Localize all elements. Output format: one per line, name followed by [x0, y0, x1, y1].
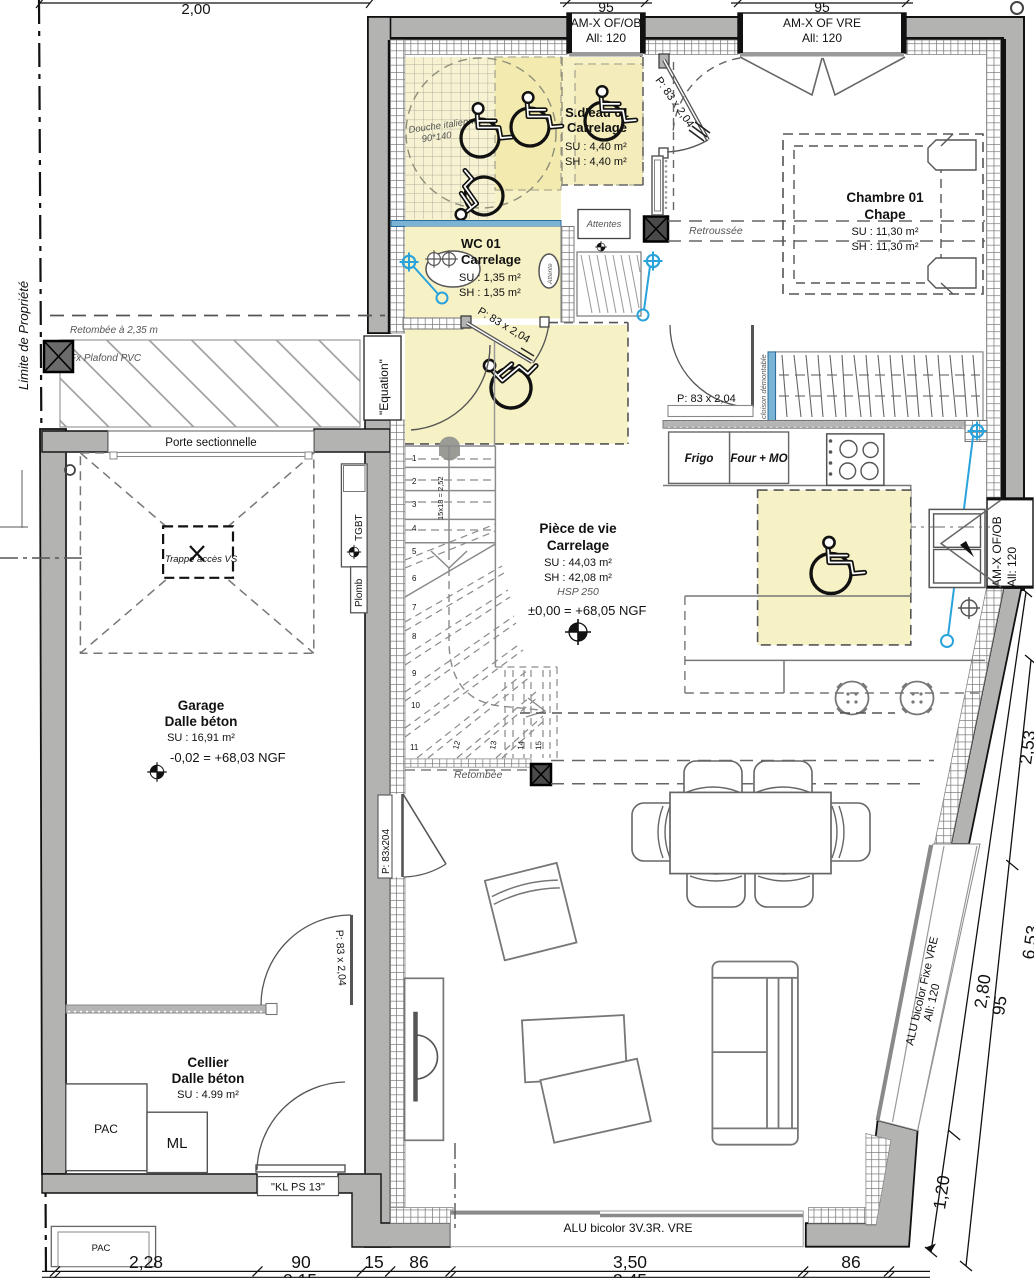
svg-text:cloison démontable: cloison démontable	[759, 354, 768, 419]
svg-text:SU : 16,91 m²: SU : 16,91 m²	[167, 732, 235, 744]
svg-text:Trappe accès VS: Trappe accès VS	[165, 554, 238, 565]
svg-text:Dalle béton: Dalle béton	[172, 1071, 245, 1086]
svg-text:Carrelage: Carrelage	[461, 252, 521, 267]
svg-text:Dalle béton: Dalle béton	[165, 714, 238, 729]
svg-text:SU : 11,30 m²: SU : 11,30 m²	[851, 226, 918, 238]
svg-text:6: 6	[412, 574, 417, 583]
svg-text:2,28: 2,28	[129, 1252, 163, 1272]
svg-text:3,45: 3,45	[613, 1270, 647, 1278]
svg-text:Chape: Chape	[864, 207, 906, 222]
svg-text:"KL PS 13": "KL PS 13"	[271, 1182, 325, 1194]
svg-text:P: 83x204: P: 83x204	[381, 829, 392, 874]
svg-text:SH : 1,35 m²: SH : 1,35 m²	[459, 287, 521, 299]
svg-text:Retombée à 2,35 m: Retombée à 2,35 m	[70, 325, 158, 336]
svg-text:15x18 = 2,52: 15x18 = 2,52	[436, 476, 445, 520]
svg-text:Carrelage: Carrelage	[547, 538, 610, 553]
svg-text:10: 10	[411, 701, 420, 710]
svg-text:86: 86	[409, 1252, 428, 1272]
svg-text:Attentes: Attentes	[586, 219, 622, 230]
svg-text:Limite de Propriété: Limite de Propriété	[16, 281, 31, 390]
svg-text:All: 120: All: 120	[1005, 547, 1019, 587]
svg-text:8: 8	[412, 632, 417, 641]
svg-text:95: 95	[598, 0, 614, 15]
svg-text:Garage: Garage	[178, 698, 225, 713]
svg-text:15: 15	[534, 740, 543, 750]
svg-text:WC 01: WC 01	[461, 236, 501, 251]
svg-text:SH : 4,40 m²: SH : 4,40 m²	[565, 156, 627, 168]
svg-text:4: 4	[412, 524, 417, 533]
svg-text:SU : 44,03 m²: SU : 44,03 m²	[544, 557, 612, 569]
svg-text:86: 86	[841, 1252, 860, 1272]
svg-text:5: 5	[412, 547, 417, 556]
svg-text:SU : 1,35 m²: SU : 1,35 m²	[459, 272, 521, 284]
svg-text:3,50: 3,50	[613, 1252, 647, 1272]
svg-text:2: 2	[412, 477, 417, 486]
svg-text:Chambre 01: Chambre 01	[846, 190, 924, 205]
svg-text:PAC: PAC	[92, 1243, 111, 1254]
svg-text:Retombée: Retombée	[454, 769, 503, 781]
svg-text:All: 120: All: 120	[586, 31, 626, 45]
svg-text:3: 3	[412, 500, 417, 509]
svg-text:90: 90	[291, 1252, 311, 1272]
svg-text:TGBT: TGBT	[354, 514, 365, 541]
svg-text:14: 14	[516, 740, 526, 750]
svg-text:7: 7	[412, 603, 417, 612]
svg-text:SH : 42,08 m²: SH : 42,08 m²	[544, 572, 612, 584]
svg-text:SU : 4.99 m²: SU : 4.99 m²	[177, 1089, 239, 1101]
svg-text:9: 9	[412, 669, 417, 678]
svg-text:-0,02 = +68,03 NGF: -0,02 = +68,03 NGF	[170, 750, 286, 765]
svg-text:Plomb: Plomb	[354, 578, 365, 607]
svg-text:SH : 11,30 m²: SH : 11,30 m²	[851, 241, 918, 253]
svg-text:2,00: 2,00	[181, 1, 210, 18]
svg-text:Four + MO: Four + MO	[730, 453, 787, 465]
svg-text:AM-X OF/OB: AM-X OF/OB	[990, 516, 1004, 587]
svg-text:All: 120: All: 120	[802, 31, 842, 45]
svg-text:AM-X OF VRE: AM-X OF VRE	[783, 16, 861, 30]
svg-text:ALU bicolor 3V.3R. VRE: ALU bicolor 3V.3R. VRE	[564, 1221, 693, 1235]
svg-text:Retroussée: Retroussée	[689, 225, 743, 237]
svg-text:1: 1	[412, 454, 417, 463]
svg-text:Attente: Attente	[547, 263, 554, 285]
svg-text:95: 95	[988, 994, 1011, 1016]
svg-text:2,15: 2,15	[283, 1270, 317, 1278]
svg-text:11: 11	[410, 743, 419, 752]
svg-text:95: 95	[814, 0, 830, 15]
svg-text:±0,00 = +68,05 NGF: ±0,00 = +68,05 NGF	[528, 603, 646, 618]
svg-text:Porte sectionnelle: Porte sectionnelle	[165, 437, 256, 449]
svg-text:AM-X OF/OB: AM-X OF/OB	[571, 16, 642, 30]
svg-text:Cellier: Cellier	[187, 1055, 229, 1070]
svg-text:15: 15	[364, 1252, 383, 1272]
svg-text:SU : 4,40 m²: SU : 4,40 m²	[565, 141, 627, 153]
svg-text:ML: ML	[167, 1135, 188, 1152]
svg-text:"Equation": "Equation"	[377, 359, 391, 415]
svg-text:Pièce de vie: Pièce de vie	[539, 521, 617, 536]
svg-text:Fx Plafond PVC: Fx Plafond PVC	[70, 353, 142, 364]
svg-text:Frigo: Frigo	[685, 453, 714, 465]
svg-text:P: 83 x 2,04: P: 83 x 2,04	[677, 393, 736, 405]
svg-text:PAC: PAC	[94, 1122, 118, 1136]
svg-text:HSP 250: HSP 250	[557, 586, 599, 598]
